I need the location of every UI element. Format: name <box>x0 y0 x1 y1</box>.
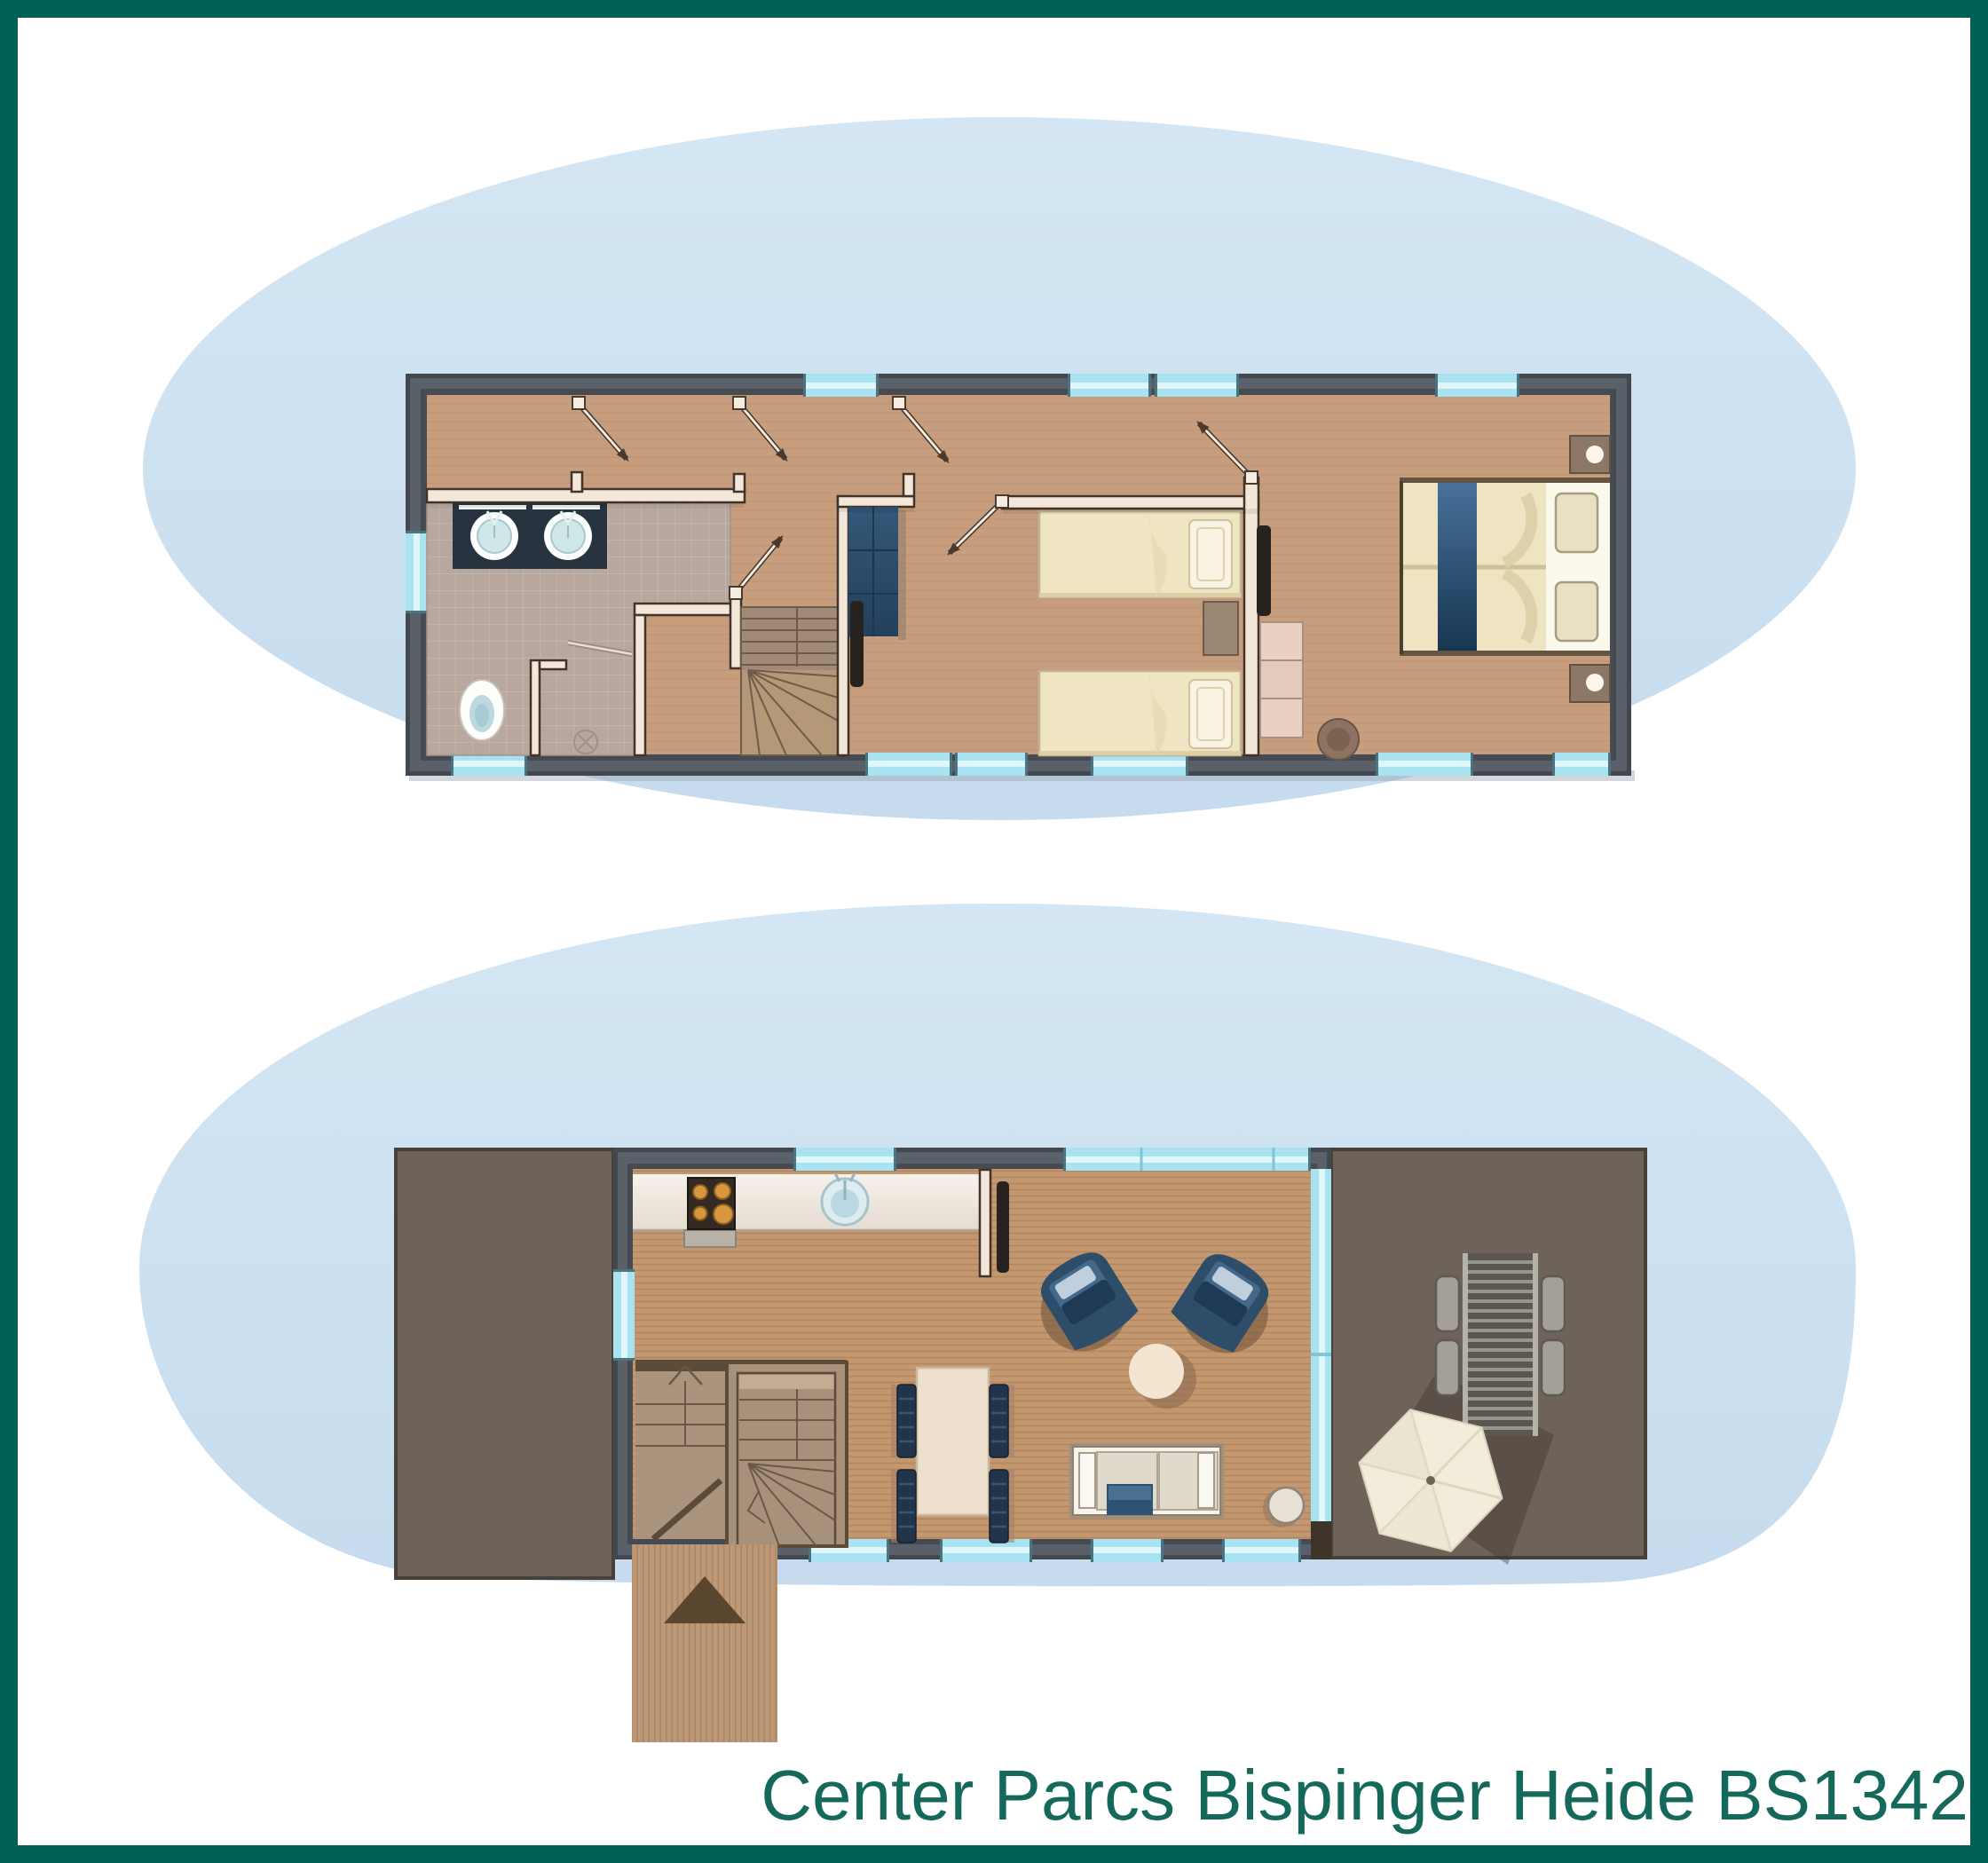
svg-text:Center Parcs Bispinger Heide B: Center Parcs Bispinger Heide BS1342 <box>761 1756 1968 1835</box>
